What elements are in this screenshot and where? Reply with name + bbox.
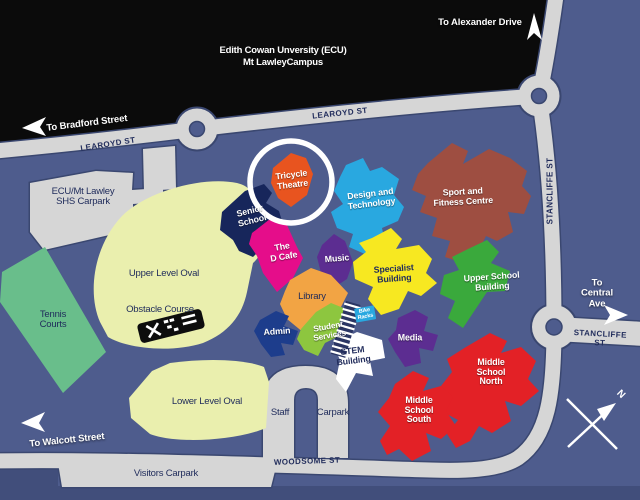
map-canvas	[0, 0, 640, 500]
building-middle-school-north	[441, 333, 539, 448]
building-tricycle-theatre	[271, 153, 313, 207]
carpark-access-road	[143, 146, 176, 191]
arrow-to-walcott-icon	[21, 412, 45, 432]
staff-carpark-area	[263, 366, 348, 458]
tennis-courts-area	[0, 247, 106, 393]
building-media	[388, 310, 438, 367]
building-specialist	[353, 228, 437, 315]
building-sport-fitness-centre	[412, 143, 531, 263]
lower-level-oval-area	[129, 360, 269, 440]
compass-icon	[567, 399, 617, 449]
campus-map: Edith Cowan Unversity (ECU) Mt LawleyCam…	[0, 0, 640, 500]
visitors-carpark-area	[58, 463, 277, 487]
